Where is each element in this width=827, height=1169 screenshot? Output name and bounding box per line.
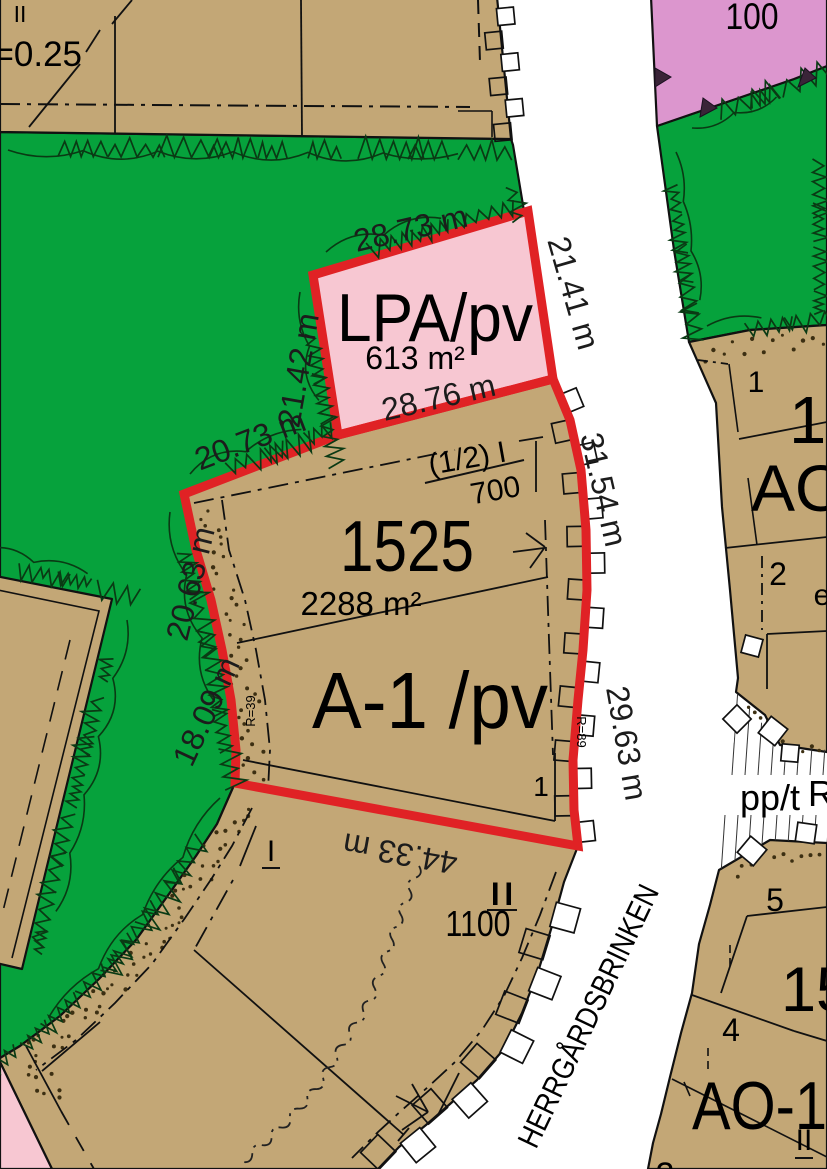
svg-text:2: 2 [656, 1156, 675, 1169]
svg-text:1100: 1100 [446, 903, 511, 944]
svg-text:A-1 /pv: A-1 /pv [312, 656, 548, 745]
svg-text:I: I [267, 835, 275, 868]
svg-text:100: 100 [726, 0, 779, 37]
svg-text:II: II [14, 1, 27, 27]
svg-text:pp/t: pp/t [740, 777, 800, 818]
svg-text:R=39: R=39 [243, 695, 258, 726]
svg-text:1: 1 [533, 771, 549, 802]
svg-text:2288 m²: 2288 m² [300, 585, 421, 622]
svg-text:2: 2 [769, 556, 787, 592]
svg-text:5: 5 [766, 882, 784, 918]
svg-text:15: 15 [781, 955, 827, 1025]
svg-text:1525: 1525 [340, 507, 474, 587]
svg-text:613 m²: 613 m² [365, 340, 465, 376]
svg-text:e=0.25: e=0.25 [0, 35, 82, 74]
svg-text:AO-: AO- [751, 451, 827, 525]
svg-text:1: 1 [748, 366, 765, 399]
svg-text:15: 15 [789, 383, 827, 458]
svg-text:R=89: R=89 [574, 716, 589, 747]
svg-text:II: II [796, 1124, 813, 1157]
svg-text:4: 4 [722, 1012, 740, 1048]
svg-text:e: e [814, 579, 827, 612]
svg-text:R: R [808, 773, 827, 814]
